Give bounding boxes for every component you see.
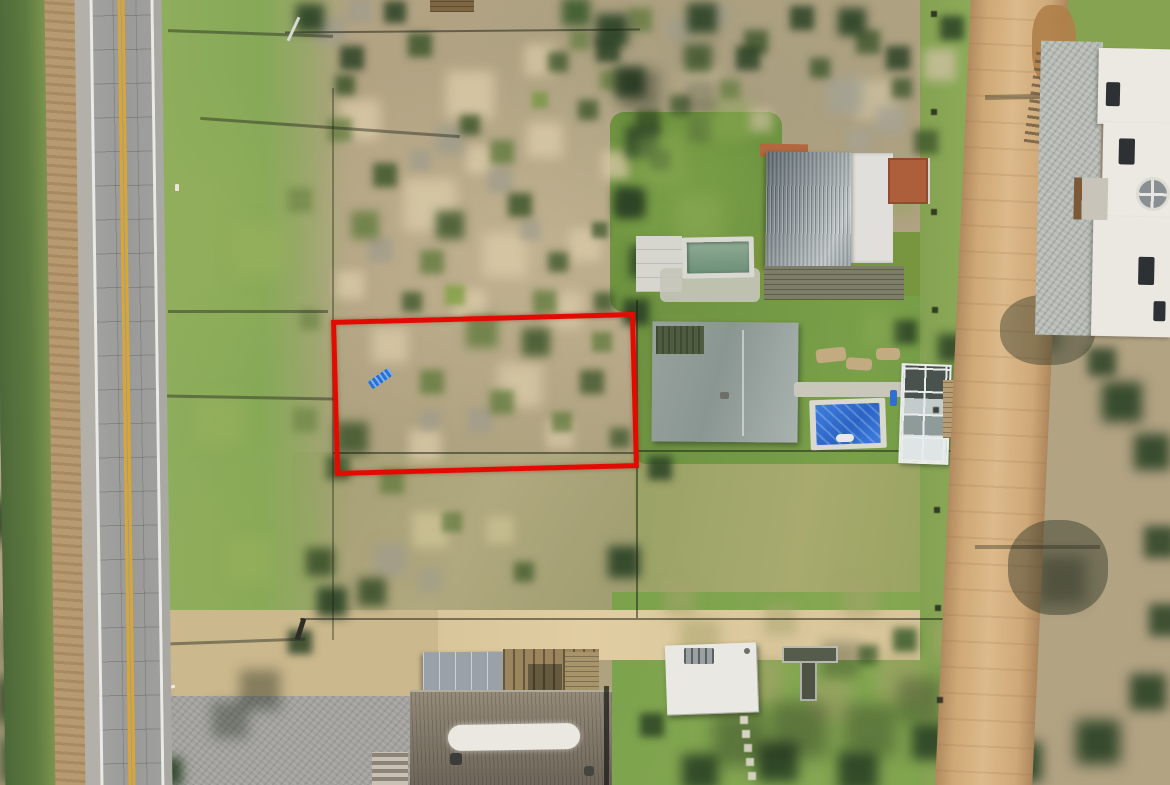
villa-entry-court — [1073, 177, 1108, 220]
shed-roof-dot — [744, 648, 750, 654]
aerial-photo-scene — [0, 0, 1170, 785]
garden-beds-gravel-3 — [876, 348, 900, 360]
lap-pool — [687, 241, 750, 273]
shed-roof-vent — [684, 648, 714, 664]
timber-steps — [372, 752, 408, 785]
roof-garden-section — [656, 326, 704, 354]
pool-cover-white-detail — [836, 434, 854, 443]
garden-beds-gravel-2 — [846, 357, 873, 371]
carport-roof — [423, 652, 503, 695]
white-villa — [1031, 37, 1170, 342]
paved-road — [0, 0, 256, 785]
villa-round-window — [1136, 177, 1170, 212]
thatch-ridge-cap — [448, 723, 580, 751]
red-plot-outline — [331, 312, 639, 476]
pergola-shade-gap — [528, 664, 562, 690]
corrugated-roof-house — [765, 152, 852, 269]
flat-white-roof — [851, 153, 893, 263]
roof-object-dark — [584, 766, 594, 776]
villa-window-4 — [1153, 301, 1165, 321]
dirt-road-wire-shadow — [975, 545, 1100, 549]
villa-window-3 — [1138, 257, 1155, 285]
blue-lounger — [890, 390, 897, 406]
terracotta-terrace — [888, 158, 928, 204]
roof-chimney — [720, 392, 729, 399]
villa-window-2 — [1119, 138, 1136, 164]
dirt-road-tree-shadow-2 — [1008, 520, 1108, 615]
villa-window-1 — [1106, 82, 1120, 106]
timber-deck-below-house — [764, 266, 904, 300]
dark-side-fence — [604, 686, 609, 785]
boundary-fence-south — [300, 618, 965, 620]
raised-planter-v — [800, 661, 817, 701]
pergola-deck-planks — [565, 652, 599, 692]
roof-ridge-highlight — [742, 330, 744, 436]
timber-deck-north — [430, 0, 474, 12]
roof-chimney-dark — [450, 753, 462, 765]
